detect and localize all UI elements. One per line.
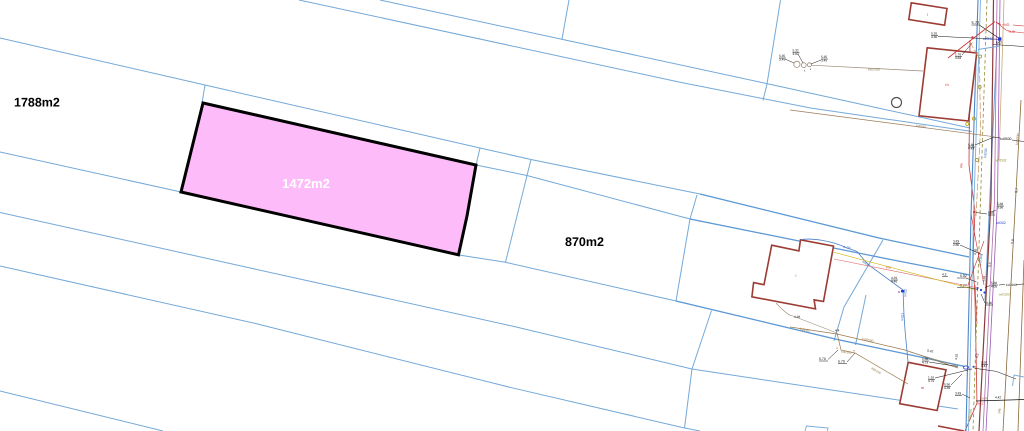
svg-text:kxD: kxD [996,41,1003,45]
svg-text:wID100: wID100 [999,293,1010,297]
svg-text:870m2: 870m2 [565,235,604,249]
svg-text:ehO32: ehO32 [996,159,1007,163]
svg-text:5.92: 5.92 [960,274,967,278]
svg-text:1788m2: 1788m2 [14,96,60,110]
svg-text:4.42: 4.42 [995,396,1001,400]
svg-text:9x12: 9x12 [977,402,984,406]
svg-text:3.83: 3.83 [955,392,961,396]
svg-text:4.81: 4.81 [954,353,959,360]
svg-text:4.3: 4.3 [942,273,947,277]
svg-text:+NO: +NO [1002,23,1010,27]
svg-text:6x40: 6x40 [981,397,988,401]
svg-text:4.85: 4.85 [973,248,978,255]
svg-text:5.70: 5.70 [819,357,826,361]
svg-text:wID02: wID02 [996,221,1006,225]
svg-text:5.2: 5.2 [975,353,980,358]
svg-text:0.96: 0.96 [986,301,992,305]
svg-text:kd0500: kd0500 [1000,137,1012,141]
svg-text:kxD100: kxD100 [1006,283,1017,287]
svg-text:4.28: 4.28 [794,315,800,319]
svg-text:5.3: 5.3 [988,262,993,267]
svg-text:i: i [927,12,928,17]
svg-text:kxD100: kxD100 [868,68,880,72]
svg-text:5.78: 5.78 [988,211,994,215]
svg-text:5.72: 5.72 [972,20,981,25]
svg-text:i: i [796,273,797,278]
svg-text:5.70: 5.70 [838,360,845,364]
svg-text:wIO32: wIO32 [983,37,993,41]
svg-text:4.4: 4.4 [835,329,840,333]
svg-text:1472m2: 1472m2 [282,176,330,191]
